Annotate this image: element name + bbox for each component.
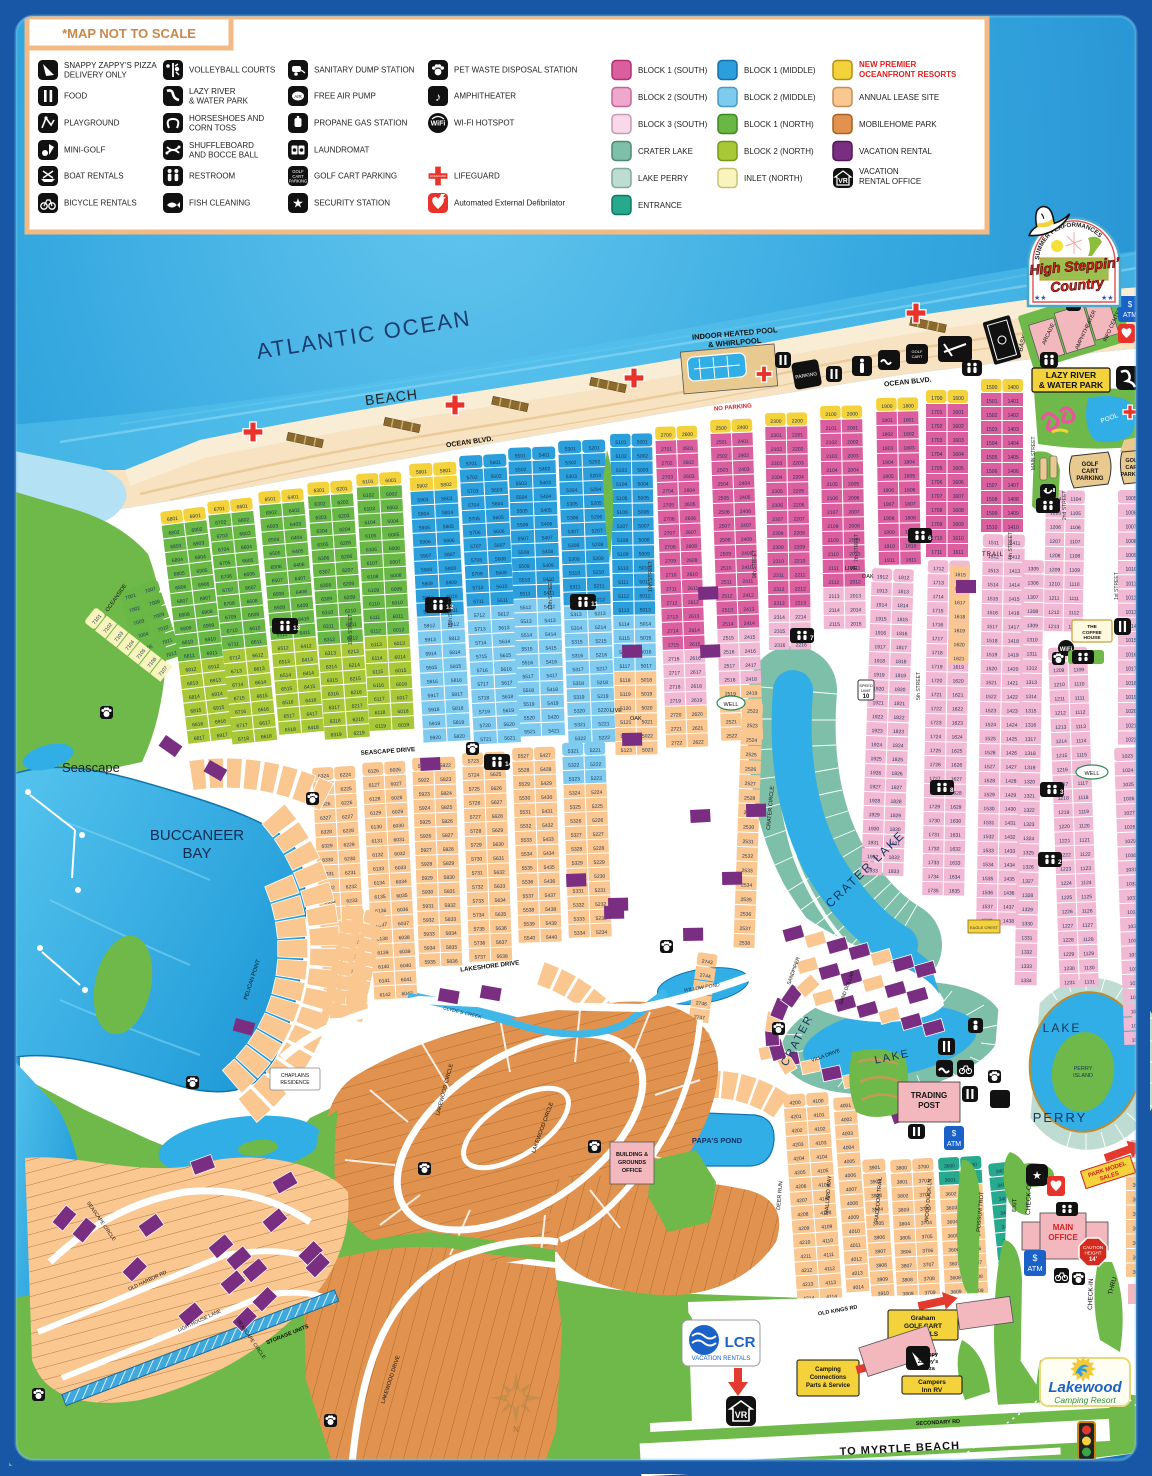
svg-text:1317: 1317: [1025, 737, 1036, 743]
svg-text:★★: ★★: [1034, 294, 1047, 302]
svg-text:2610: 2610: [687, 572, 699, 578]
svg-text:6327: 6327: [320, 815, 332, 822]
svg-text:6501: 6501: [264, 496, 276, 503]
svg-text:5403: 5403: [540, 480, 552, 486]
svg-text:1816: 1816: [896, 631, 908, 637]
svg-text:6139: 6139: [377, 950, 389, 957]
svg-text:5912: 5912: [424, 623, 436, 630]
svg-text:1714: 1714: [933, 594, 944, 600]
svg-text:5535: 5535: [522, 865, 534, 871]
svg-text:5304: 5304: [566, 488, 578, 494]
svg-text:2201: 2201: [792, 432, 803, 438]
svg-text:1514: 1514: [987, 582, 998, 588]
svg-text:5618: 5618: [502, 694, 514, 701]
svg-text:5905: 5905: [419, 525, 431, 532]
svg-text:1701: 1701: [931, 410, 942, 416]
svg-text:1432: 1432: [1004, 835, 1015, 841]
svg-text:2304: 2304: [771, 475, 782, 481]
svg-text:LAUNDROMAT: LAUNDROMAT: [314, 146, 370, 155]
svg-text:2706: 2706: [663, 516, 675, 522]
svg-text:2214: 2214: [795, 614, 806, 620]
svg-text:1210: 1210: [1054, 682, 1066, 688]
svg-text:5924: 5924: [419, 805, 431, 811]
svg-text:5819: 5819: [453, 720, 465, 727]
svg-text:5301: 5301: [565, 446, 577, 452]
svg-text:6032: 6032: [394, 851, 406, 858]
svg-text:2712: 2712: [666, 600, 678, 606]
svg-text:5002: 5002: [637, 453, 648, 459]
svg-text:5702: 5702: [466, 475, 478, 482]
svg-text:6127: 6127: [368, 782, 380, 789]
svg-text:1912: 1912: [877, 574, 889, 580]
svg-text:2515: 2515: [723, 635, 735, 641]
svg-text:5737: 5737: [474, 954, 486, 960]
svg-text:TRADING: TRADING: [911, 1091, 947, 1100]
svg-text:2208: 2208: [794, 530, 805, 536]
svg-text:3803: 3803: [898, 1207, 910, 1214]
svg-text:6218: 6218: [352, 717, 364, 724]
svg-text:5331: 5331: [573, 888, 585, 894]
svg-text:5432: 5432: [542, 823, 554, 829]
svg-text:5421: 5421: [548, 728, 560, 734]
svg-text:2113: 2113: [829, 594, 840, 600]
svg-text:2710: 2710: [665, 572, 677, 578]
svg-text:1618: 1618: [954, 614, 965, 620]
svg-text:5634: 5634: [495, 898, 507, 904]
svg-text:6513: 6513: [279, 659, 291, 666]
svg-text:2721: 2721: [671, 726, 683, 732]
svg-text:HEIGHT: HEIGHT: [1084, 1251, 1101, 1256]
svg-text:6031: 6031: [393, 837, 405, 844]
svg-text:MOBILEHOME PARK: MOBILEHOME PARK: [859, 120, 937, 129]
svg-text:3802: 3802: [897, 1193, 909, 1200]
svg-text:6613: 6613: [253, 666, 265, 673]
svg-text:2212: 2212: [795, 586, 806, 592]
svg-text:1620: 1620: [954, 642, 965, 648]
svg-text:5818: 5818: [452, 706, 464, 713]
svg-text:5211: 5211: [594, 583, 605, 589]
svg-text:5013: 5013: [640, 607, 651, 613]
svg-text:1710: 1710: [931, 536, 942, 542]
svg-text:6607: 6607: [245, 585, 257, 592]
svg-text:6113: 6113: [371, 642, 382, 649]
svg-text:★★: ★★: [1101, 294, 1114, 302]
svg-text:ISLAND: ISLAND: [1073, 1073, 1093, 1079]
svg-text:2705: 2705: [663, 502, 675, 508]
svg-text:5511: 5511: [520, 591, 531, 597]
svg-text:5920: 5920: [430, 735, 442, 742]
svg-text:Campers: Campers: [918, 1379, 946, 1386]
svg-text:2522: 2522: [726, 733, 738, 739]
svg-text:6037: 6037: [398, 921, 410, 928]
svg-text:4014: 4014: [853, 1284, 865, 1291]
svg-text:3807: 3807: [901, 1263, 913, 1270]
svg-text:5420: 5420: [548, 714, 560, 720]
svg-text:6012: 6012: [393, 627, 405, 634]
svg-text:6115: 6115: [372, 669, 383, 676]
svg-text:1227: 1227: [1062, 923, 1074, 929]
svg-text:2604: 2604: [684, 488, 696, 494]
svg-text:6506: 6506: [270, 564, 282, 571]
svg-text:2621: 2621: [692, 726, 704, 732]
svg-text:2716: 2716: [668, 656, 680, 662]
svg-text:5208: 5208: [592, 542, 604, 548]
svg-text:5324: 5324: [569, 790, 581, 796]
svg-text:6514: 6514: [280, 672, 292, 679]
svg-text:2412: 2412: [743, 593, 755, 599]
svg-text:6410: 6410: [298, 616, 310, 623]
svg-text:3603: 3603: [946, 1205, 958, 1212]
svg-text:1128: 1128: [1083, 937, 1094, 943]
svg-text:6225: 6225: [340, 786, 352, 793]
svg-text:2517: 2517: [724, 663, 736, 669]
svg-text:1617: 1617: [954, 600, 965, 606]
svg-text:5726: 5726: [469, 800, 481, 806]
svg-text:OFFICE: OFFICE: [622, 1168, 642, 1174]
svg-text:1110: 1110: [1069, 582, 1080, 588]
svg-text:3806: 3806: [900, 1249, 912, 1256]
svg-text:1313: 1313: [1026, 680, 1037, 686]
svg-text:6207: 6207: [342, 567, 354, 574]
svg-text:3700: 3700: [918, 1164, 930, 1171]
svg-text:1430: 1430: [1005, 807, 1016, 813]
svg-text:1210: 1210: [1049, 581, 1060, 587]
svg-text:6007: 6007: [389, 559, 401, 566]
svg-text:2312: 2312: [773, 587, 784, 593]
svg-text:6313: 6313: [325, 650, 337, 657]
svg-text:3901: 3901: [869, 1165, 881, 1172]
svg-text:5835: 5835: [446, 945, 458, 951]
svg-text:2015: 2015: [850, 621, 861, 627]
svg-text:5103: 5103: [616, 468, 627, 474]
svg-text:5832: 5832: [445, 903, 457, 909]
svg-text:5621: 5621: [504, 735, 516, 742]
svg-text:OAK: OAK: [862, 574, 874, 580]
svg-text:5913: 5913: [425, 637, 437, 644]
svg-text:2114: 2114: [829, 608, 840, 614]
svg-text:1802: 1802: [903, 431, 914, 437]
svg-text:4012: 4012: [851, 1256, 863, 1263]
svg-text:5925: 5925: [420, 819, 432, 825]
svg-text:BLOCK 1 (NORTH): BLOCK 1 (NORTH): [744, 120, 814, 129]
svg-text:EXIT: EXIT: [1012, 1198, 1018, 1212]
svg-text:6709: 6709: [225, 614, 237, 621]
svg-text:BICYCLE RENTALS: BICYCLE RENTALS: [64, 199, 137, 208]
svg-text:6715: 6715: [233, 695, 245, 702]
svg-text:2210: 2210: [794, 558, 805, 564]
svg-text:6305: 6305: [317, 542, 329, 549]
svg-text:6602: 6602: [238, 517, 250, 524]
svg-text:6219: 6219: [353, 730, 365, 737]
svg-text:1410: 1410: [1008, 525, 1019, 531]
svg-text:2614: 2614: [689, 628, 701, 634]
svg-text:6202: 6202: [337, 500, 349, 507]
svg-text:2101: 2101: [826, 426, 837, 432]
svg-text:6409: 6409: [297, 603, 309, 610]
svg-text:5628: 5628: [492, 814, 504, 820]
svg-text:1929: 1929: [869, 812, 881, 818]
svg-text:6406: 6406: [293, 562, 305, 569]
svg-text:1907: 1907: [883, 502, 894, 508]
svg-text:1025: 1025: [1123, 782, 1135, 788]
svg-text:1925: 1925: [870, 756, 882, 762]
svg-text:6140: 6140: [378, 964, 390, 971]
svg-text:PARKING: PARKING: [289, 179, 308, 184]
svg-text:ENTRANCE: ENTRANCE: [638, 201, 682, 210]
svg-text:1408: 1408: [1008, 497, 1019, 503]
svg-text:2310: 2310: [773, 559, 784, 565]
svg-text:5210: 5210: [593, 570, 605, 576]
svg-text:1630: 1630: [950, 819, 961, 825]
svg-text:5607: 5607: [494, 542, 506, 549]
svg-text:1113: 1113: [1075, 724, 1086, 730]
svg-text:1403: 1403: [1008, 427, 1019, 433]
svg-text:2313: 2313: [774, 601, 785, 607]
svg-text:1602: 1602: [953, 424, 964, 430]
svg-text:6006: 6006: [389, 546, 401, 553]
svg-text:2615: 2615: [689, 642, 701, 648]
svg-text:5807: 5807: [444, 552, 456, 559]
svg-text:CHECK-OUT: CHECK-OUT: [1025, 1176, 1033, 1215]
svg-text:1305: 1305: [1028, 566, 1039, 572]
svg-text:3801: 3801: [896, 1179, 908, 1186]
svg-text:6316: 6316: [328, 691, 340, 698]
svg-text:5207: 5207: [592, 528, 604, 534]
svg-text:5323: 5323: [569, 776, 581, 782]
svg-text:5803: 5803: [441, 496, 453, 503]
svg-text:1215: 1215: [1056, 753, 1068, 759]
svg-text:5302: 5302: [565, 460, 577, 466]
svg-text:6703: 6703: [216, 533, 228, 540]
svg-text:2014: 2014: [850, 607, 861, 613]
svg-text:3600: 3600: [944, 1163, 956, 1170]
svg-text:1331: 1331: [1021, 935, 1032, 941]
svg-text:5503: 5503: [516, 481, 528, 487]
svg-text:19th STREET: 19th STREET: [348, 614, 354, 645]
svg-text:14: 14: [505, 761, 513, 768]
svg-text:1817: 1817: [896, 645, 908, 651]
svg-text:6413: 6413: [302, 657, 314, 664]
svg-text:6041: 6041: [401, 977, 413, 984]
svg-text:6029: 6029: [392, 809, 404, 816]
svg-text:1530: 1530: [983, 806, 994, 812]
svg-text:1536: 1536: [982, 890, 993, 896]
svg-text:5521: 5521: [524, 729, 536, 735]
svg-text:1415: 1415: [1008, 597, 1019, 603]
svg-text:Parts & Service: Parts & Service: [806, 1383, 851, 1389]
svg-text:5406: 5406: [541, 521, 553, 527]
svg-text:1112: 1112: [1069, 610, 1080, 616]
svg-text:4204: 4204: [793, 1156, 805, 1163]
svg-text:EAGLE CREST: EAGLE CREST: [970, 925, 999, 930]
svg-text:4211: 4211: [800, 1254, 811, 1261]
svg-text:1323: 1323: [1023, 822, 1034, 828]
svg-text:CAUTION: CAUTION: [1083, 1245, 1103, 1250]
svg-text:RESIDENCE: RESIDENCE: [280, 1080, 310, 1086]
svg-text:2530: 2530: [743, 825, 755, 831]
svg-text:3707: 3707: [923, 1262, 935, 1269]
svg-text:1625: 1625: [951, 749, 962, 755]
svg-text:4009: 4009: [848, 1215, 860, 1222]
svg-text:LIMIT: LIMIT: [861, 688, 872, 693]
svg-text:VACATION: VACATION: [859, 167, 899, 176]
svg-text:1115: 1115: [1076, 752, 1087, 758]
svg-text:1111: 1111: [1075, 696, 1085, 702]
svg-text:2213: 2213: [795, 600, 806, 606]
svg-text:LAKE PERRY: LAKE PERRY: [638, 174, 689, 183]
svg-text:5926: 5926: [420, 833, 432, 839]
svg-text:Connections: Connections: [810, 1375, 847, 1381]
svg-text:1805: 1805: [904, 473, 915, 479]
svg-text:1528: 1528: [984, 778, 995, 784]
svg-text:5314: 5314: [571, 626, 583, 632]
svg-text:5318: 5318: [573, 681, 585, 687]
svg-text:1818: 1818: [895, 659, 907, 665]
svg-text:5715: 5715: [476, 654, 488, 661]
svg-text:6616: 6616: [258, 706, 270, 713]
svg-text:3705: 3705: [921, 1234, 933, 1241]
svg-text:6304: 6304: [316, 528, 328, 535]
svg-text:1433: 1433: [1004, 849, 1015, 855]
svg-text:5415: 5415: [545, 646, 557, 652]
svg-text:1325: 1325: [1023, 850, 1034, 856]
svg-text:& WATER PARK: & WATER PARK: [1039, 380, 1104, 390]
svg-text:Snappy: Snappy: [918, 1352, 939, 1358]
svg-text:5605: 5605: [493, 515, 505, 522]
svg-text:5328: 5328: [571, 846, 583, 852]
svg-text:7: 7: [810, 635, 814, 642]
svg-text:6515: 6515: [281, 686, 293, 693]
svg-text:6035: 6035: [396, 893, 408, 900]
svg-text:2512: 2512: [721, 593, 733, 599]
svg-text:6118: 6118: [375, 710, 386, 717]
svg-text:2507: 2507: [719, 523, 731, 529]
svg-text:2532: 2532: [742, 853, 754, 859]
svg-text:5804: 5804: [442, 510, 454, 517]
svg-text:5022: 5022: [642, 733, 653, 739]
svg-text:1603: 1603: [953, 438, 964, 444]
svg-text:1621: 1621: [952, 693, 963, 699]
svg-text:5934: 5934: [424, 945, 436, 951]
svg-text:1216: 1216: [1057, 767, 1069, 773]
svg-text:5005: 5005: [638, 495, 649, 501]
svg-text:5507: 5507: [518, 536, 530, 542]
svg-text:5439: 5439: [545, 921, 557, 927]
svg-text:8: 8: [950, 787, 954, 794]
svg-text:5836: 5836: [446, 959, 458, 965]
svg-text:5221: 5221: [590, 748, 602, 754]
svg-text:5902: 5902: [416, 483, 428, 490]
svg-text:1526: 1526: [984, 750, 995, 756]
svg-text:2007: 2007: [848, 509, 859, 515]
svg-text:FISH CLEANING: FISH CLEANING: [189, 199, 250, 208]
svg-text:2112: 2112: [828, 580, 839, 586]
svg-text:6407: 6407: [294, 576, 306, 583]
svg-text:5708: 5708: [471, 557, 483, 564]
svg-text:6038: 6038: [399, 935, 411, 942]
svg-text:6608: 6608: [246, 598, 258, 605]
svg-text:2612: 2612: [688, 600, 700, 606]
svg-text:4109: 4109: [821, 1224, 833, 1231]
svg-text:1524: 1524: [985, 722, 996, 728]
svg-text:5603: 5603: [491, 487, 503, 494]
svg-text:1509: 1509: [986, 511, 997, 517]
svg-text:5509: 5509: [518, 564, 530, 570]
svg-text:5638: 5638: [496, 954, 508, 960]
svg-text:5918: 5918: [428, 707, 440, 714]
svg-text:1130: 1130: [1084, 965, 1095, 971]
svg-text:5023: 5023: [642, 747, 653, 753]
svg-text:2514: 2514: [722, 621, 734, 627]
svg-text:1422: 1422: [1007, 695, 1018, 701]
svg-text:1427: 1427: [1006, 765, 1017, 771]
svg-text:1600: 1600: [953, 396, 964, 402]
svg-text:6615: 6615: [256, 693, 268, 700]
svg-text:1437: 1437: [1003, 905, 1014, 911]
svg-text:GOLF CART PARKING: GOLF CART PARKING: [314, 172, 397, 181]
svg-text:NEW PREMIER: NEW PREMIER: [859, 60, 917, 69]
svg-text:5703: 5703: [467, 489, 479, 496]
svg-text:5107: 5107: [617, 524, 628, 530]
svg-text:6310: 6310: [322, 610, 334, 617]
svg-text:1527: 1527: [984, 764, 995, 770]
svg-text:5205: 5205: [591, 501, 603, 507]
svg-text:Camping: Camping: [815, 1367, 841, 1373]
svg-text:BUCCANEER: BUCCANEER: [150, 827, 244, 844]
svg-text:4113: 4113: [825, 1280, 836, 1287]
svg-text:15th STREET: 15th STREET: [448, 597, 454, 628]
svg-text:1900: 1900: [881, 404, 892, 410]
svg-text:5831: 5831: [444, 889, 456, 895]
svg-text:1615: 1615: [955, 572, 966, 578]
svg-text:5119: 5119: [620, 692, 631, 698]
svg-text:6: 6: [928, 535, 932, 542]
svg-text:6002: 6002: [386, 491, 398, 498]
svg-text:PET WASTE DISPOSAL STATION: PET WASTE DISPOSAL STATION: [454, 66, 578, 75]
svg-text:MAIN: MAIN: [1053, 1223, 1074, 1232]
svg-text:VR: VR: [838, 178, 848, 185]
svg-text:4004: 4004: [843, 1145, 855, 1152]
svg-text:5806: 5806: [443, 538, 455, 545]
svg-text:5716: 5716: [477, 668, 489, 675]
svg-text:1425: 1425: [1006, 737, 1017, 743]
svg-text:1209: 1209: [1053, 668, 1065, 674]
svg-text:6227: 6227: [342, 814, 354, 821]
svg-text:1111: 1111: [1069, 596, 1079, 602]
svg-text:4112: 4112: [824, 1266, 835, 1273]
svg-text:6018: 6018: [397, 709, 409, 716]
svg-text:2500: 2500: [715, 426, 727, 432]
svg-text:2111: 2111: [828, 566, 839, 572]
svg-text:1221: 1221: [1059, 838, 1071, 844]
svg-text:BUILDING &: BUILDING &: [616, 1152, 648, 1158]
svg-text:2305: 2305: [772, 489, 783, 495]
svg-text:5316: 5316: [572, 653, 584, 659]
svg-text:4006: 4006: [845, 1173, 857, 1180]
svg-text:1418: 1418: [1008, 639, 1019, 645]
svg-text:4111: 4111: [823, 1252, 834, 1259]
svg-text:6130: 6130: [371, 824, 383, 831]
svg-text:5112: 5112: [618, 594, 629, 600]
svg-text:FREE AIR PUMP: FREE AIR PUMP: [314, 92, 376, 101]
svg-text:5321: 5321: [574, 722, 586, 728]
svg-text:1228: 1228: [1063, 937, 1075, 943]
svg-text:WiFi: WiFi: [431, 121, 446, 128]
svg-text:PROPANE GAS STATION: PROPANE GAS STATION: [314, 119, 408, 128]
svg-text:1902: 1902: [882, 432, 893, 438]
svg-text:1438: 1438: [1003, 919, 1014, 925]
svg-text:5733: 5733: [473, 898, 485, 904]
